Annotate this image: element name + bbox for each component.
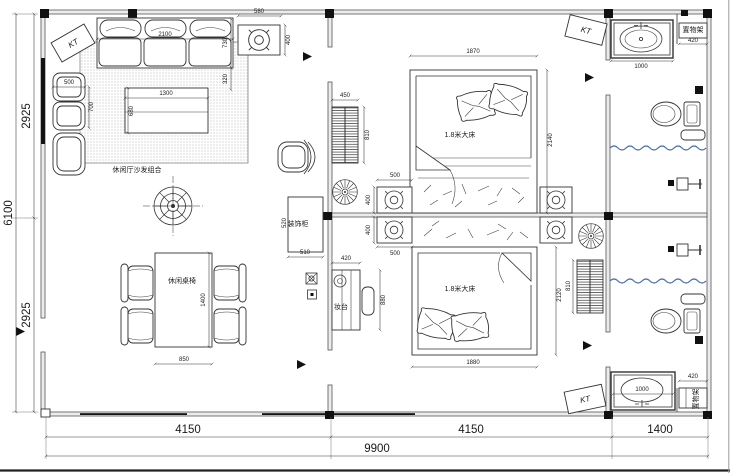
lamp-icon [547,191,565,209]
dim-bay-living: 4150 [175,424,201,436]
solid-wall-segment [41,58,45,144]
toilet-bottom [651,294,705,333]
dim-armchair-width: 500 [64,80,75,86]
dining-set [121,253,246,347]
ac-tag: KT [564,384,606,413]
table-lamp-icon [249,30,270,51]
nightstands-lower [377,217,572,243]
window-band [80,413,187,415]
toilet-mat [681,294,705,304]
ac-tag: KT [565,15,607,46]
window-band [262,413,415,415]
toilet-top [651,102,705,140]
dim-bed1-length: 2140 [548,133,554,147]
lamp-icon [547,221,565,239]
bed2-label: 1.8米大床 [445,284,476,293]
dim-bay-bath: 1400 [647,424,673,436]
bathroom-top [610,20,707,190]
dim-sofa-depth: 730 [223,37,229,48]
dim-nightstand-depth-upper: 400 [366,194,372,205]
bed-1 [410,70,537,213]
dining-set-label: 休闲桌椅 [168,276,196,285]
dim-wardrobe1-width: 450 [340,93,351,99]
dim-basin-top: 1000 [634,64,648,70]
dim-height-upper: 2925 [21,103,33,129]
dim-shelf-top: 420 [688,38,699,44]
deco-cabinet-label: 装饰柜 [288,219,309,228]
dim-dresser-length: 880 [381,294,387,305]
armchairs [53,73,85,175]
dim-bay-bedrooms: 4150 [458,424,484,436]
dim-total-height: 6100 [3,200,15,226]
stool [362,287,374,315]
dim-height-lower: 2925 [21,302,33,328]
shelf-bottom-label: 置物架 [691,389,700,410]
dressing-table [332,270,374,330]
dim-nightstand-width-lower: 500 [390,251,401,257]
dim-wardrobe2-depth: 810 [566,280,572,291]
dim-shelf-bottom: 420 [688,374,699,380]
dim-basin-bottom: 1000 [635,387,649,393]
dim-dresser-width: 420 [341,256,352,262]
desk-chair [278,140,315,174]
bed-skirt-sketch [424,221,528,240]
ceiling-fan-icon [333,180,358,205]
sofa [97,18,233,68]
electrical-symbols [306,273,317,299]
dim-cabinet-width: 510 [300,250,311,256]
dresser-label: 妆台 [334,302,348,311]
bathroom-bottom [610,244,707,410]
waterproof-line [610,279,706,283]
wardrobe-2 [577,260,603,313]
chandelier-icon [143,176,203,236]
shower-icon [668,244,702,256]
ceiling-fan-icon [579,224,604,249]
floor-drain [695,86,703,94]
sofa-area-label: 休闲厅沙发组合 [113,165,162,174]
bedroom-1 [332,70,572,213]
dim-sofa-width: 2100 [158,32,172,38]
dim-nightstand-width-upper: 500 [390,173,401,179]
dim-dining-width: 850 [179,357,190,363]
dim-total-width: 9900 [364,443,390,455]
floor-plan: KT KT KT 4150 4150 1400 9900 6100 2925 2… [0,0,730,473]
dim-dining-length: 1400 [201,293,207,307]
toilet-mat [681,130,705,140]
dim-armchair-depth: 700 [89,101,95,112]
dim-sofa-gap: 320 [223,73,229,84]
dim-coffee-table-width: 1300 [159,91,173,97]
shelf-top-label: 置物架 [683,25,704,34]
dim-side-table-width: 580 [254,9,265,15]
dim-side-table-depth: 400 [286,34,292,45]
floor-drain [695,336,703,344]
lamp-icon [385,221,403,239]
lamp-icon [385,191,403,209]
wardrobe-1 [332,107,358,163]
shower-icon [668,178,702,190]
dim-wardrobe1-depth: 810 [365,129,371,140]
dim-bed2-length: 2120 [557,288,563,302]
living-room [53,18,323,347]
dim-coffee-table-depth: 680 [129,105,135,116]
bed1-label: 1.8米大床 [445,130,476,139]
floor-plan-svg: KT KT KT 4150 4150 1400 9900 6100 2925 2… [0,0,730,473]
waterproof-line [610,146,706,150]
side-table [238,25,280,55]
dim-bed1-width: 1870 [466,49,480,55]
sink-counter-top [611,20,673,58]
dim-nightstand-depth-lower: 400 [366,224,372,235]
dim-bed2-width: 1880 [466,360,480,366]
